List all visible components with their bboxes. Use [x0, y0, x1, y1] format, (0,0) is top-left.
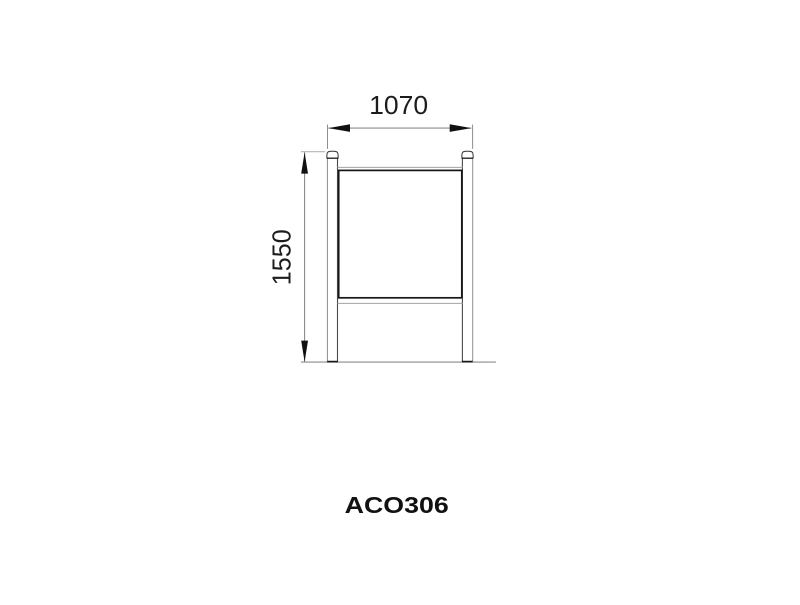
svg-text:1550: 1550	[269, 229, 297, 285]
svg-text:1070: 1070	[369, 90, 428, 120]
svg-text:ACO306: ACO306	[345, 492, 449, 518]
